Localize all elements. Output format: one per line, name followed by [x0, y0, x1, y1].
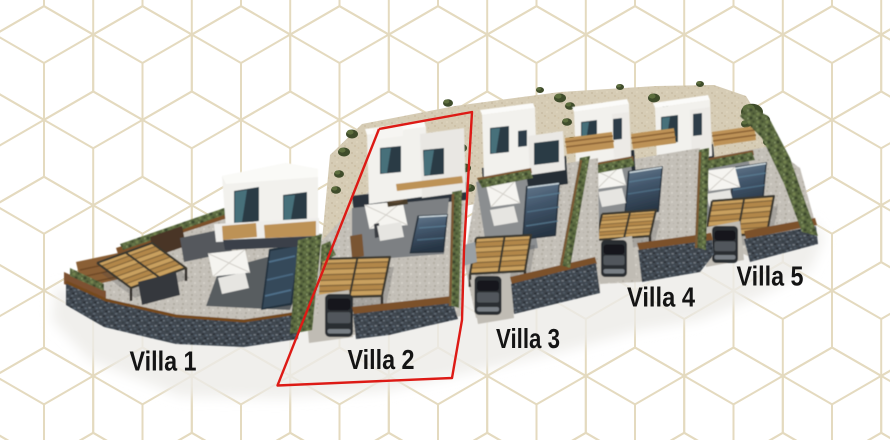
svg-text:Villa 3: Villa 3 — [496, 323, 560, 354]
svg-text:Villa 5: Villa 5 — [737, 261, 804, 292]
svg-text:Villa 4: Villa 4 — [627, 282, 696, 313]
svg-text:Villa 1: Villa 1 — [130, 346, 197, 377]
svg-text:Villa 2: Villa 2 — [348, 344, 415, 375]
